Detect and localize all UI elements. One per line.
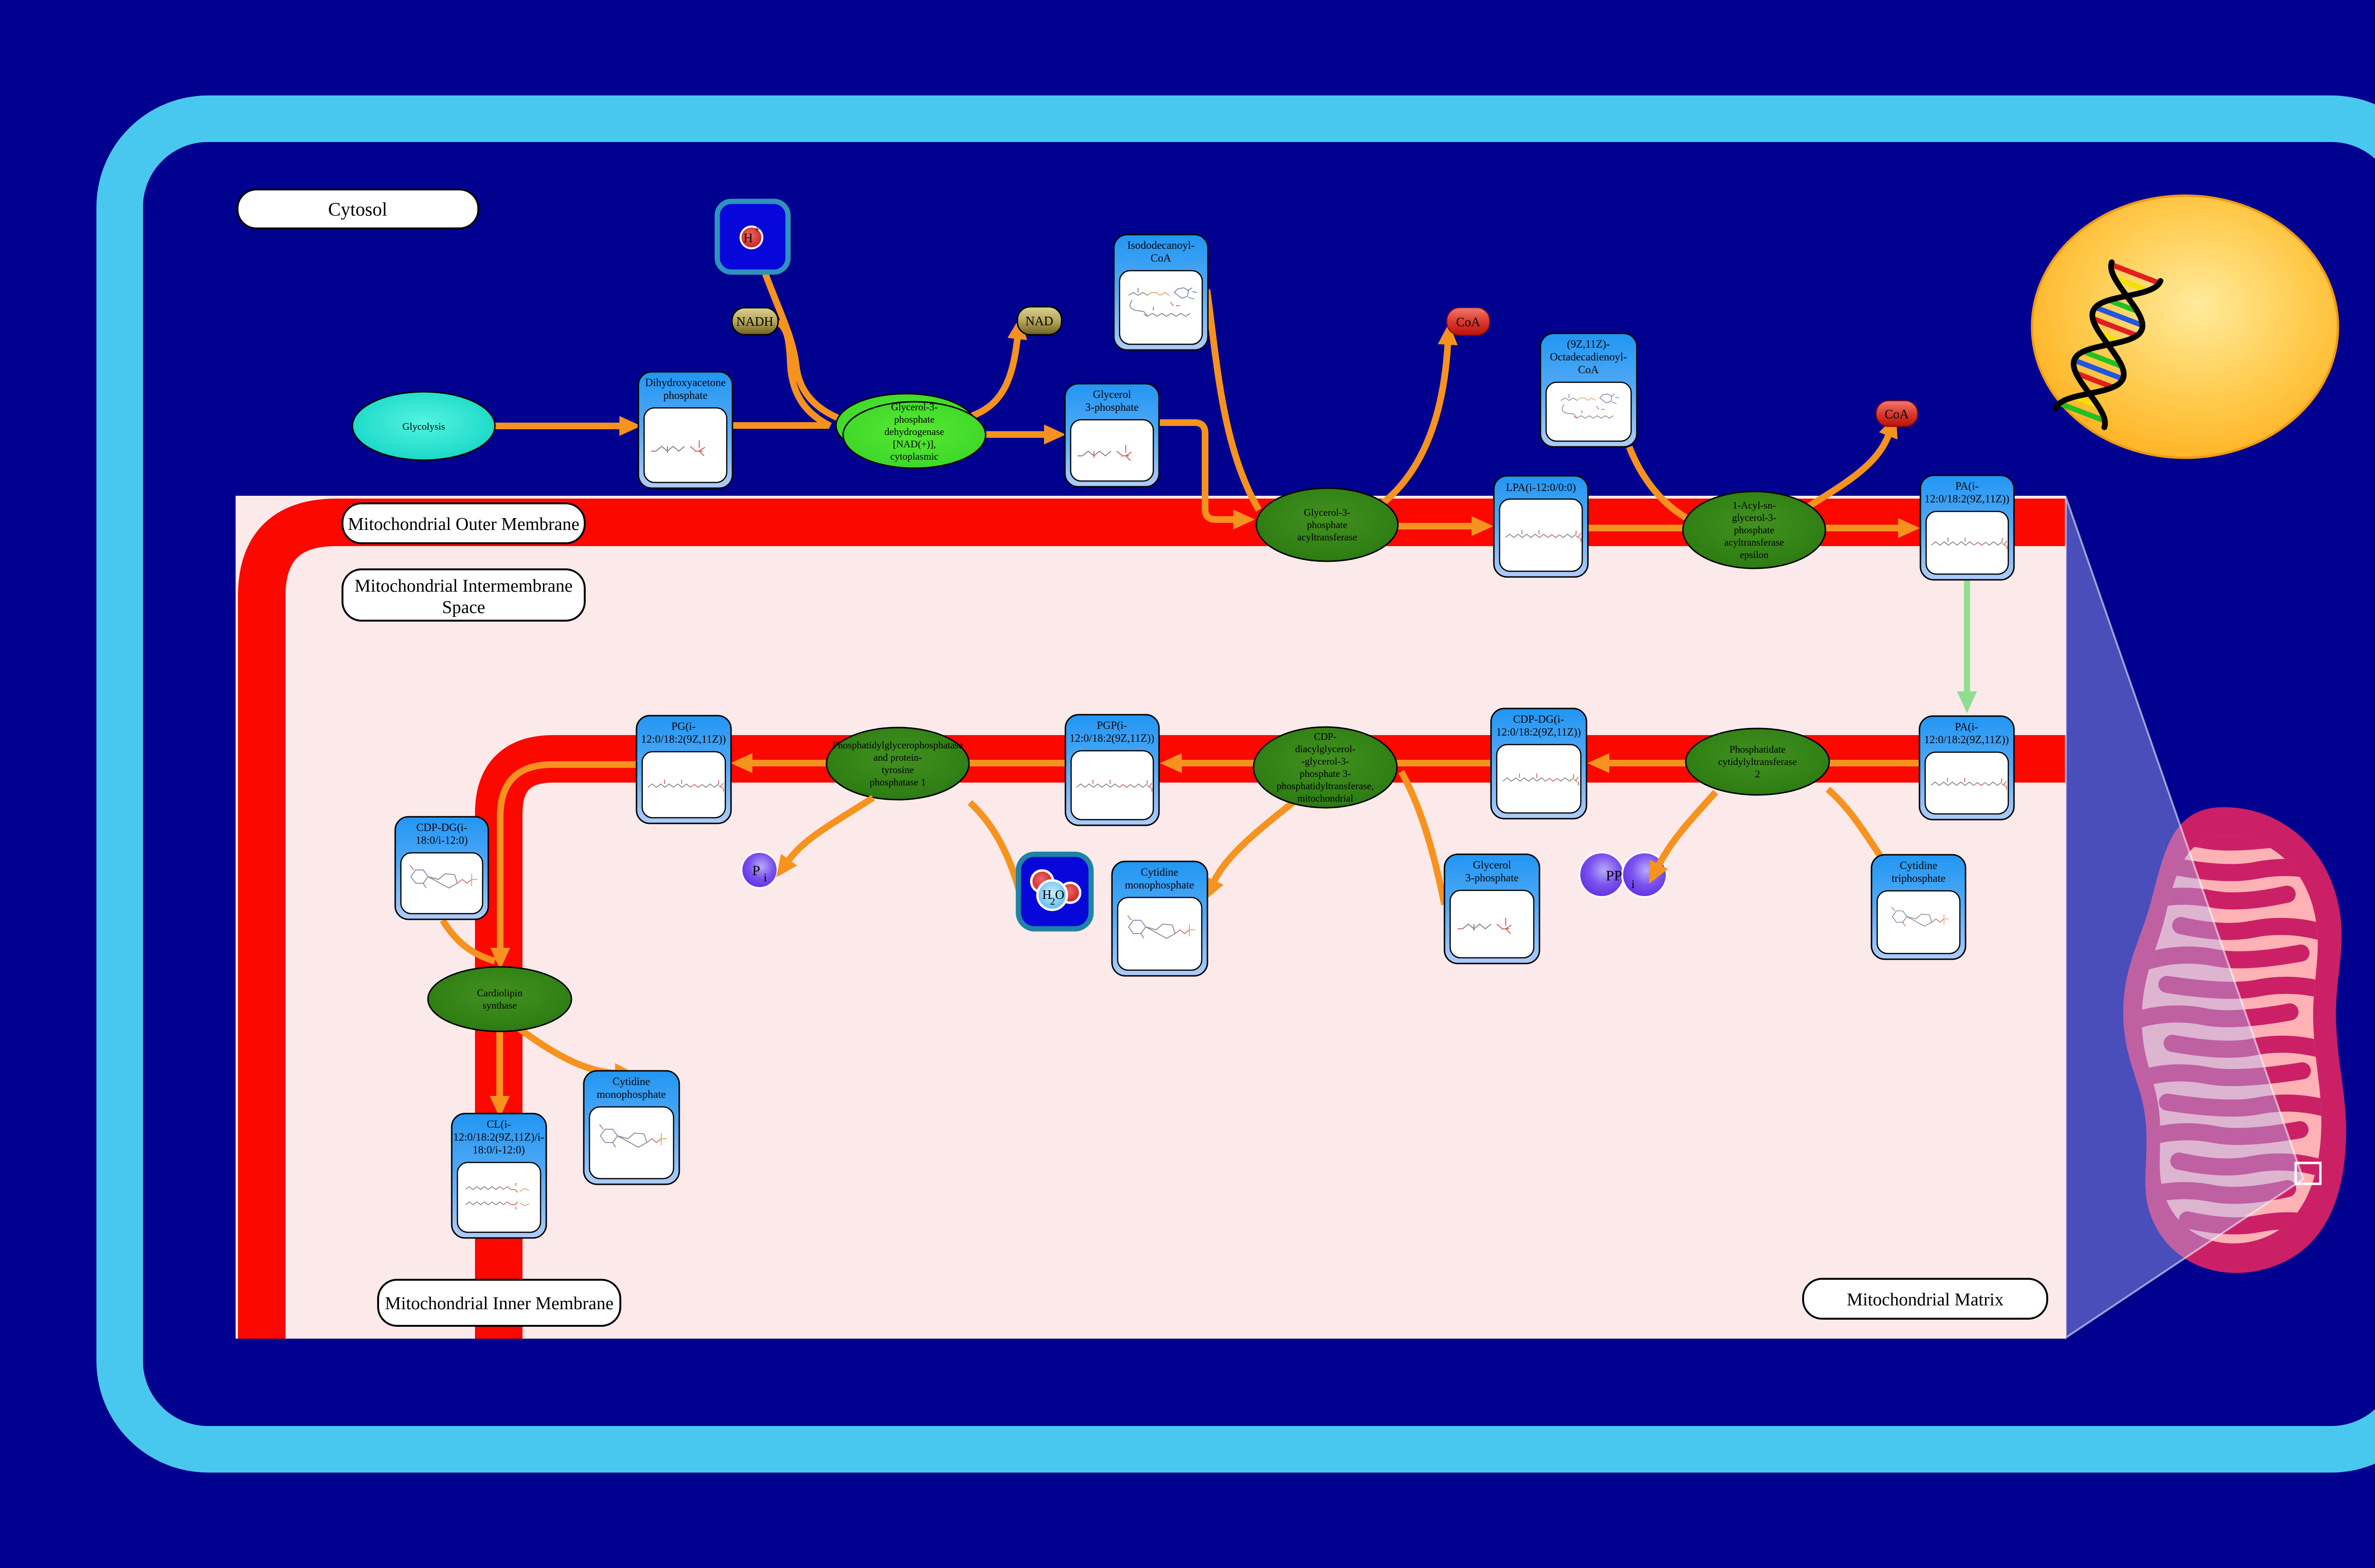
svg-text:CDP-DG(i-: CDP-DG(i- xyxy=(416,822,467,833)
svg-text:12:0/18:2(9Z,11Z)): 12:0/18:2(9Z,11Z)) xyxy=(1070,732,1155,744)
svg-text:triphosphate: triphosphate xyxy=(1891,872,1946,884)
svg-text:synthase: synthase xyxy=(483,1000,517,1011)
svg-text:Glycolysis: Glycolysis xyxy=(402,421,445,432)
svg-text:CDP-DG(i-: CDP-DG(i- xyxy=(1513,713,1564,725)
svg-text:12:0/18:2(9Z,11Z)): 12:0/18:2(9Z,11Z)) xyxy=(641,733,726,745)
svg-text:(9Z,11Z)-: (9Z,11Z)- xyxy=(1567,338,1610,350)
svg-text:LPA(i-12:0/0:0): LPA(i-12:0/0:0) xyxy=(1506,482,1576,493)
svg-text:cytoplasmic: cytoplasmic xyxy=(890,451,938,462)
svg-text:Cytidine: Cytidine xyxy=(612,1076,650,1087)
svg-text:PP: PP xyxy=(1606,867,1622,884)
svg-text:CoA: CoA xyxy=(1884,407,1909,421)
svg-text:i: i xyxy=(764,872,767,884)
svg-text:CoA: CoA xyxy=(1456,315,1481,329)
svg-text:12:0/18:2(9Z,11Z)): 12:0/18:2(9Z,11Z)) xyxy=(1496,726,1581,738)
svg-text:Glycerol: Glycerol xyxy=(1093,388,1131,400)
svg-text:12:0/18:2(9Z,11Z)): 12:0/18:2(9Z,11Z)) xyxy=(1924,734,2009,746)
svg-text:and protein-: and protein- xyxy=(874,752,922,763)
svg-text:PA(i-: PA(i- xyxy=(1955,721,1978,733)
svg-text:mitochondrial: mitochondrial xyxy=(1297,793,1353,804)
svg-text:Glycerol-3-: Glycerol-3- xyxy=(891,401,938,413)
svg-text:3-phosphate: 3-phosphate xyxy=(1465,872,1519,884)
svg-text:18:0/i-12:0): 18:0/i-12:0) xyxy=(473,1144,525,1156)
svg-text:Glycerol: Glycerol xyxy=(1473,859,1511,871)
svg-text:tyrosine: tyrosine xyxy=(882,764,914,775)
svg-text:CL(i-: CL(i- xyxy=(486,1118,511,1130)
svg-text:PGP(i-: PGP(i- xyxy=(1097,719,1127,731)
svg-text:phosphate: phosphate xyxy=(1307,519,1347,530)
svg-text:phosphatidyltransferase,: phosphatidyltransferase, xyxy=(1277,780,1374,792)
svg-text:1-Acyl-sn-: 1-Acyl-sn- xyxy=(1733,500,1776,511)
svg-text:CoA: CoA xyxy=(1578,364,1599,376)
svg-text:phosphatase 1: phosphatase 1 xyxy=(870,776,926,788)
svg-text:phosphate: phosphate xyxy=(663,389,707,401)
svg-text:NAD: NAD xyxy=(1026,314,1054,328)
svg-text:phosphate: phosphate xyxy=(894,414,934,425)
svg-text:Cytidine: Cytidine xyxy=(1900,860,1937,871)
svg-text:acyltransferase: acyltransferase xyxy=(1724,537,1784,548)
svg-text:3-phosphate: 3-phosphate xyxy=(1085,401,1139,413)
svg-text:P: P xyxy=(752,863,760,878)
svg-text:2: 2 xyxy=(1050,896,1055,907)
svg-text:Dihydroxyacetone: Dihydroxyacetone xyxy=(645,377,726,388)
svg-text:acyltransferase: acyltransferase xyxy=(1297,531,1357,543)
svg-text:Mitochondrial Intermembrane: Mitochondrial Intermembrane xyxy=(354,576,572,596)
svg-text:phosphate: phosphate xyxy=(1734,524,1774,536)
svg-text:Octadecadienoyl-: Octadecadienoyl- xyxy=(1550,351,1627,363)
svg-text:Mitochondrial Matrix: Mitochondrial Matrix xyxy=(1847,1290,2004,1310)
svg-text:Cytidine: Cytidine xyxy=(1140,866,1178,878)
svg-text:phosphate 3-: phosphate 3- xyxy=(1300,768,1351,779)
svg-text:Isododecanoyl-: Isododecanoyl- xyxy=(1127,239,1195,251)
svg-text:-glycerol-3-: -glycerol-3- xyxy=(1301,756,1349,767)
svg-text:diacylglycerol-: diacylglycerol- xyxy=(1295,743,1355,755)
svg-text:monophosphate: monophosphate xyxy=(597,1088,666,1100)
svg-text:Phosphatidate: Phosphatidate xyxy=(1729,744,1786,755)
svg-text:+: + xyxy=(754,223,760,235)
svg-text:Mitochondrial Outer Membrane: Mitochondrial Outer Membrane xyxy=(348,514,579,534)
svg-text:Cytosol: Cytosol xyxy=(328,198,387,220)
svg-text:NADH: NADH xyxy=(736,314,773,329)
svg-text:Cardiolipin: Cardiolipin xyxy=(477,987,522,999)
svg-text:Space: Space xyxy=(442,597,485,617)
svg-text:2: 2 xyxy=(1755,768,1760,780)
svg-text:H: H xyxy=(743,231,753,245)
svg-text:PG(i-: PG(i- xyxy=(671,720,695,732)
svg-text:Phosphatidylglycerophosphatase: Phosphatidylglycerophosphatase xyxy=(832,739,963,751)
svg-text:i: i xyxy=(1632,878,1635,891)
svg-text:Mitochondrial Inner Membrane: Mitochondrial Inner Membrane xyxy=(385,1294,613,1313)
svg-text:glycerol-3-: glycerol-3- xyxy=(1732,512,1776,523)
svg-text:cytidylyltransferase: cytidylyltransferase xyxy=(1718,756,1797,767)
svg-text:PA(i-: PA(i- xyxy=(1956,480,1979,492)
svg-text:12:0/18:2(9Z,11Z)): 12:0/18:2(9Z,11Z)) xyxy=(1925,493,2010,505)
svg-text:epsilon: epsilon xyxy=(1740,549,1769,560)
svg-text:monophosphate: monophosphate xyxy=(1125,879,1194,891)
svg-text:CoA: CoA xyxy=(1150,252,1171,264)
svg-text:12:0/18:2(9Z,11Z)/i-: 12:0/18:2(9Z,11Z)/i- xyxy=(453,1131,544,1143)
svg-text:CDP-: CDP- xyxy=(1314,731,1337,742)
svg-text:18:0/i-12:0): 18:0/i-12:0) xyxy=(416,834,468,846)
svg-text:dehydrogenase: dehydrogenase xyxy=(884,426,944,437)
svg-text:[NAD(+)],: [NAD(+)], xyxy=(893,438,936,450)
svg-text:Glycerol-3-: Glycerol-3- xyxy=(1304,507,1350,518)
svg-text:O: O xyxy=(1055,888,1064,902)
